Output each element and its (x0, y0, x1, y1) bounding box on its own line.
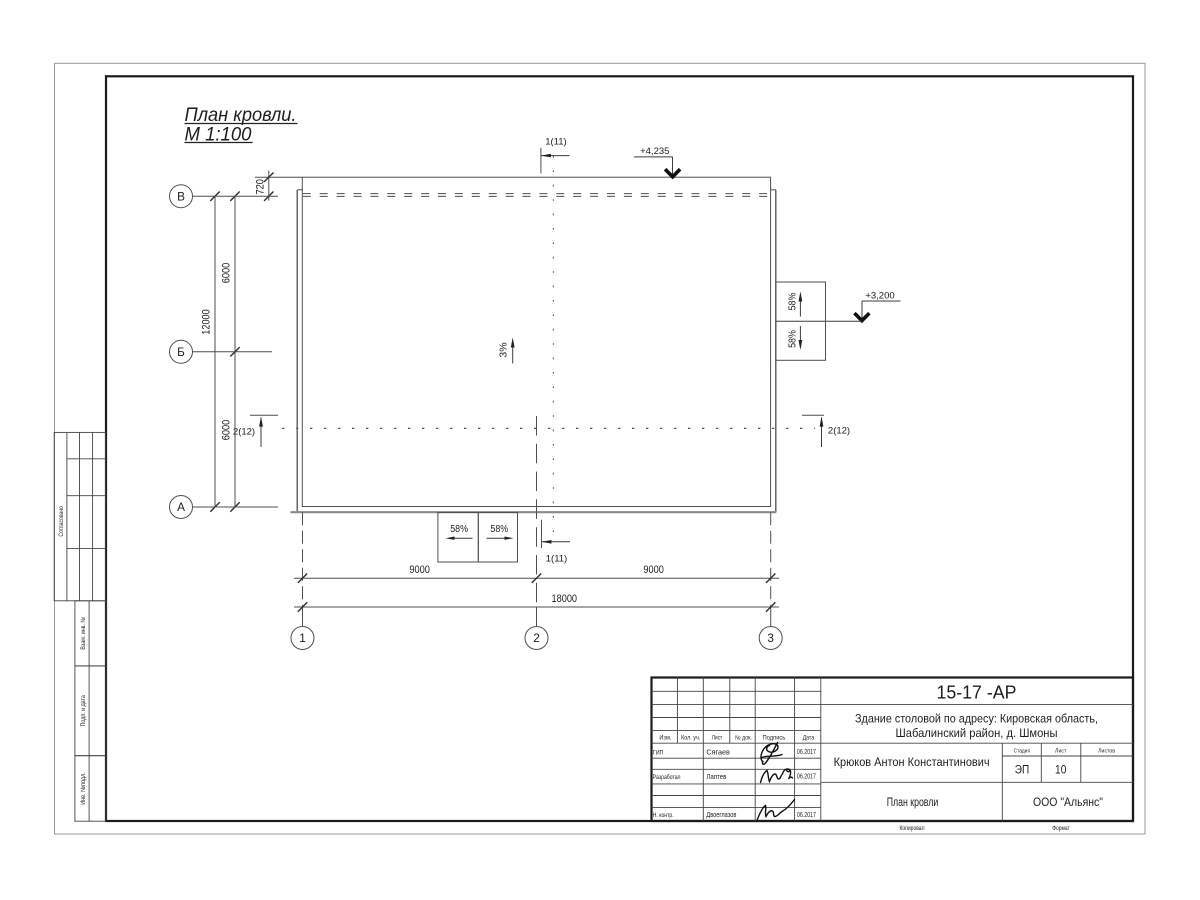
svg-text:Изм.: Изм. (659, 735, 671, 741)
svg-text:06.2017: 06.2017 (797, 810, 816, 819)
svg-text:3%: 3% (498, 342, 510, 357)
svg-text:Листов: Листов (1098, 749, 1115, 755)
svg-text:Копировал: Копировал (900, 825, 925, 832)
svg-text:6000: 6000 (220, 263, 232, 284)
svg-text:1(11): 1(11) (546, 553, 567, 564)
svg-text:2(12): 2(12) (233, 427, 255, 438)
svg-text:Кол. уч.: Кол. уч. (681, 735, 700, 741)
svg-text:9000: 9000 (643, 564, 664, 576)
svg-text:Здание столовой по адресу: Кир: Здание столовой по адресу: Кировская обл… (855, 712, 1098, 726)
svg-text:58%: 58% (450, 524, 468, 535)
svg-text:Крюков Антон Константинович: Крюков Антон Константинович (834, 757, 990, 769)
svg-text:3: 3 (767, 631, 774, 645)
svg-text:58%: 58% (787, 293, 798, 311)
svg-text:Б: Б (177, 345, 185, 359)
svg-text:№ док.: № док. (735, 734, 752, 741)
svg-text:720: 720 (254, 179, 266, 195)
svg-text:Лист: Лист (1055, 749, 1067, 755)
svg-text:10: 10 (1055, 762, 1066, 776)
svg-text:06.2017: 06.2017 (797, 772, 816, 781)
svg-text:+4,235: +4,235 (640, 146, 669, 157)
svg-text:6000: 6000 (220, 420, 232, 441)
svg-text:ЭП: ЭП (1015, 762, 1029, 776)
svg-text:Подп. и дата: Подп. и дата (80, 695, 87, 727)
svg-text:Лист: Лист (712, 735, 723, 741)
svg-text:2: 2 (533, 631, 540, 645)
svg-text:15-17 -АР: 15-17 -АР (937, 682, 1017, 703)
svg-text:Двоеглазов: Двоеглазов (706, 810, 736, 819)
svg-text:Н. контр.: Н. контр. (653, 812, 674, 819)
svg-text:58%: 58% (787, 330, 798, 348)
svg-text:Дата: Дата (803, 735, 815, 741)
svg-text:Инв. №подл.: Инв. №подл. (80, 772, 87, 805)
svg-text:Разработал: Разработал (653, 773, 681, 781)
svg-text:ООО "Альянс": ООО "Альянс" (1033, 797, 1103, 809)
svg-text:ГИП: ГИП (653, 749, 664, 756)
svg-text:А: А (177, 500, 185, 514)
svg-text:+3,200: +3,200 (865, 291, 894, 302)
svg-text:Формат: Формат (1052, 825, 1070, 832)
svg-text:Подпись: Подпись (763, 735, 786, 741)
svg-text:Взам. инв. №: Взам. инв. № (80, 617, 87, 650)
svg-text:1: 1 (299, 631, 306, 645)
svg-text:9000: 9000 (409, 564, 430, 576)
svg-text:2(12): 2(12) (828, 426, 850, 437)
svg-text:58%: 58% (490, 524, 508, 535)
svg-text:Согласовано: Согласовано (58, 506, 65, 537)
svg-text:Лаптев: Лаптев (706, 772, 726, 781)
svg-text:1(11): 1(11) (545, 136, 566, 147)
svg-text:12000: 12000 (201, 309, 213, 335)
svg-text:06.2017: 06.2017 (797, 747, 816, 756)
svg-text:18000: 18000 (552, 593, 578, 605)
svg-text:В: В (177, 189, 185, 203)
svg-text:Сягаев: Сягаев (706, 747, 730, 756)
svg-text:Шабалинский район, д. Шмоны: Шабалинский район, д. Шмоны (896, 726, 1058, 740)
svg-text:Стадия: Стадия (1014, 749, 1030, 755)
svg-text:План кровли: План кровли (887, 797, 939, 809)
